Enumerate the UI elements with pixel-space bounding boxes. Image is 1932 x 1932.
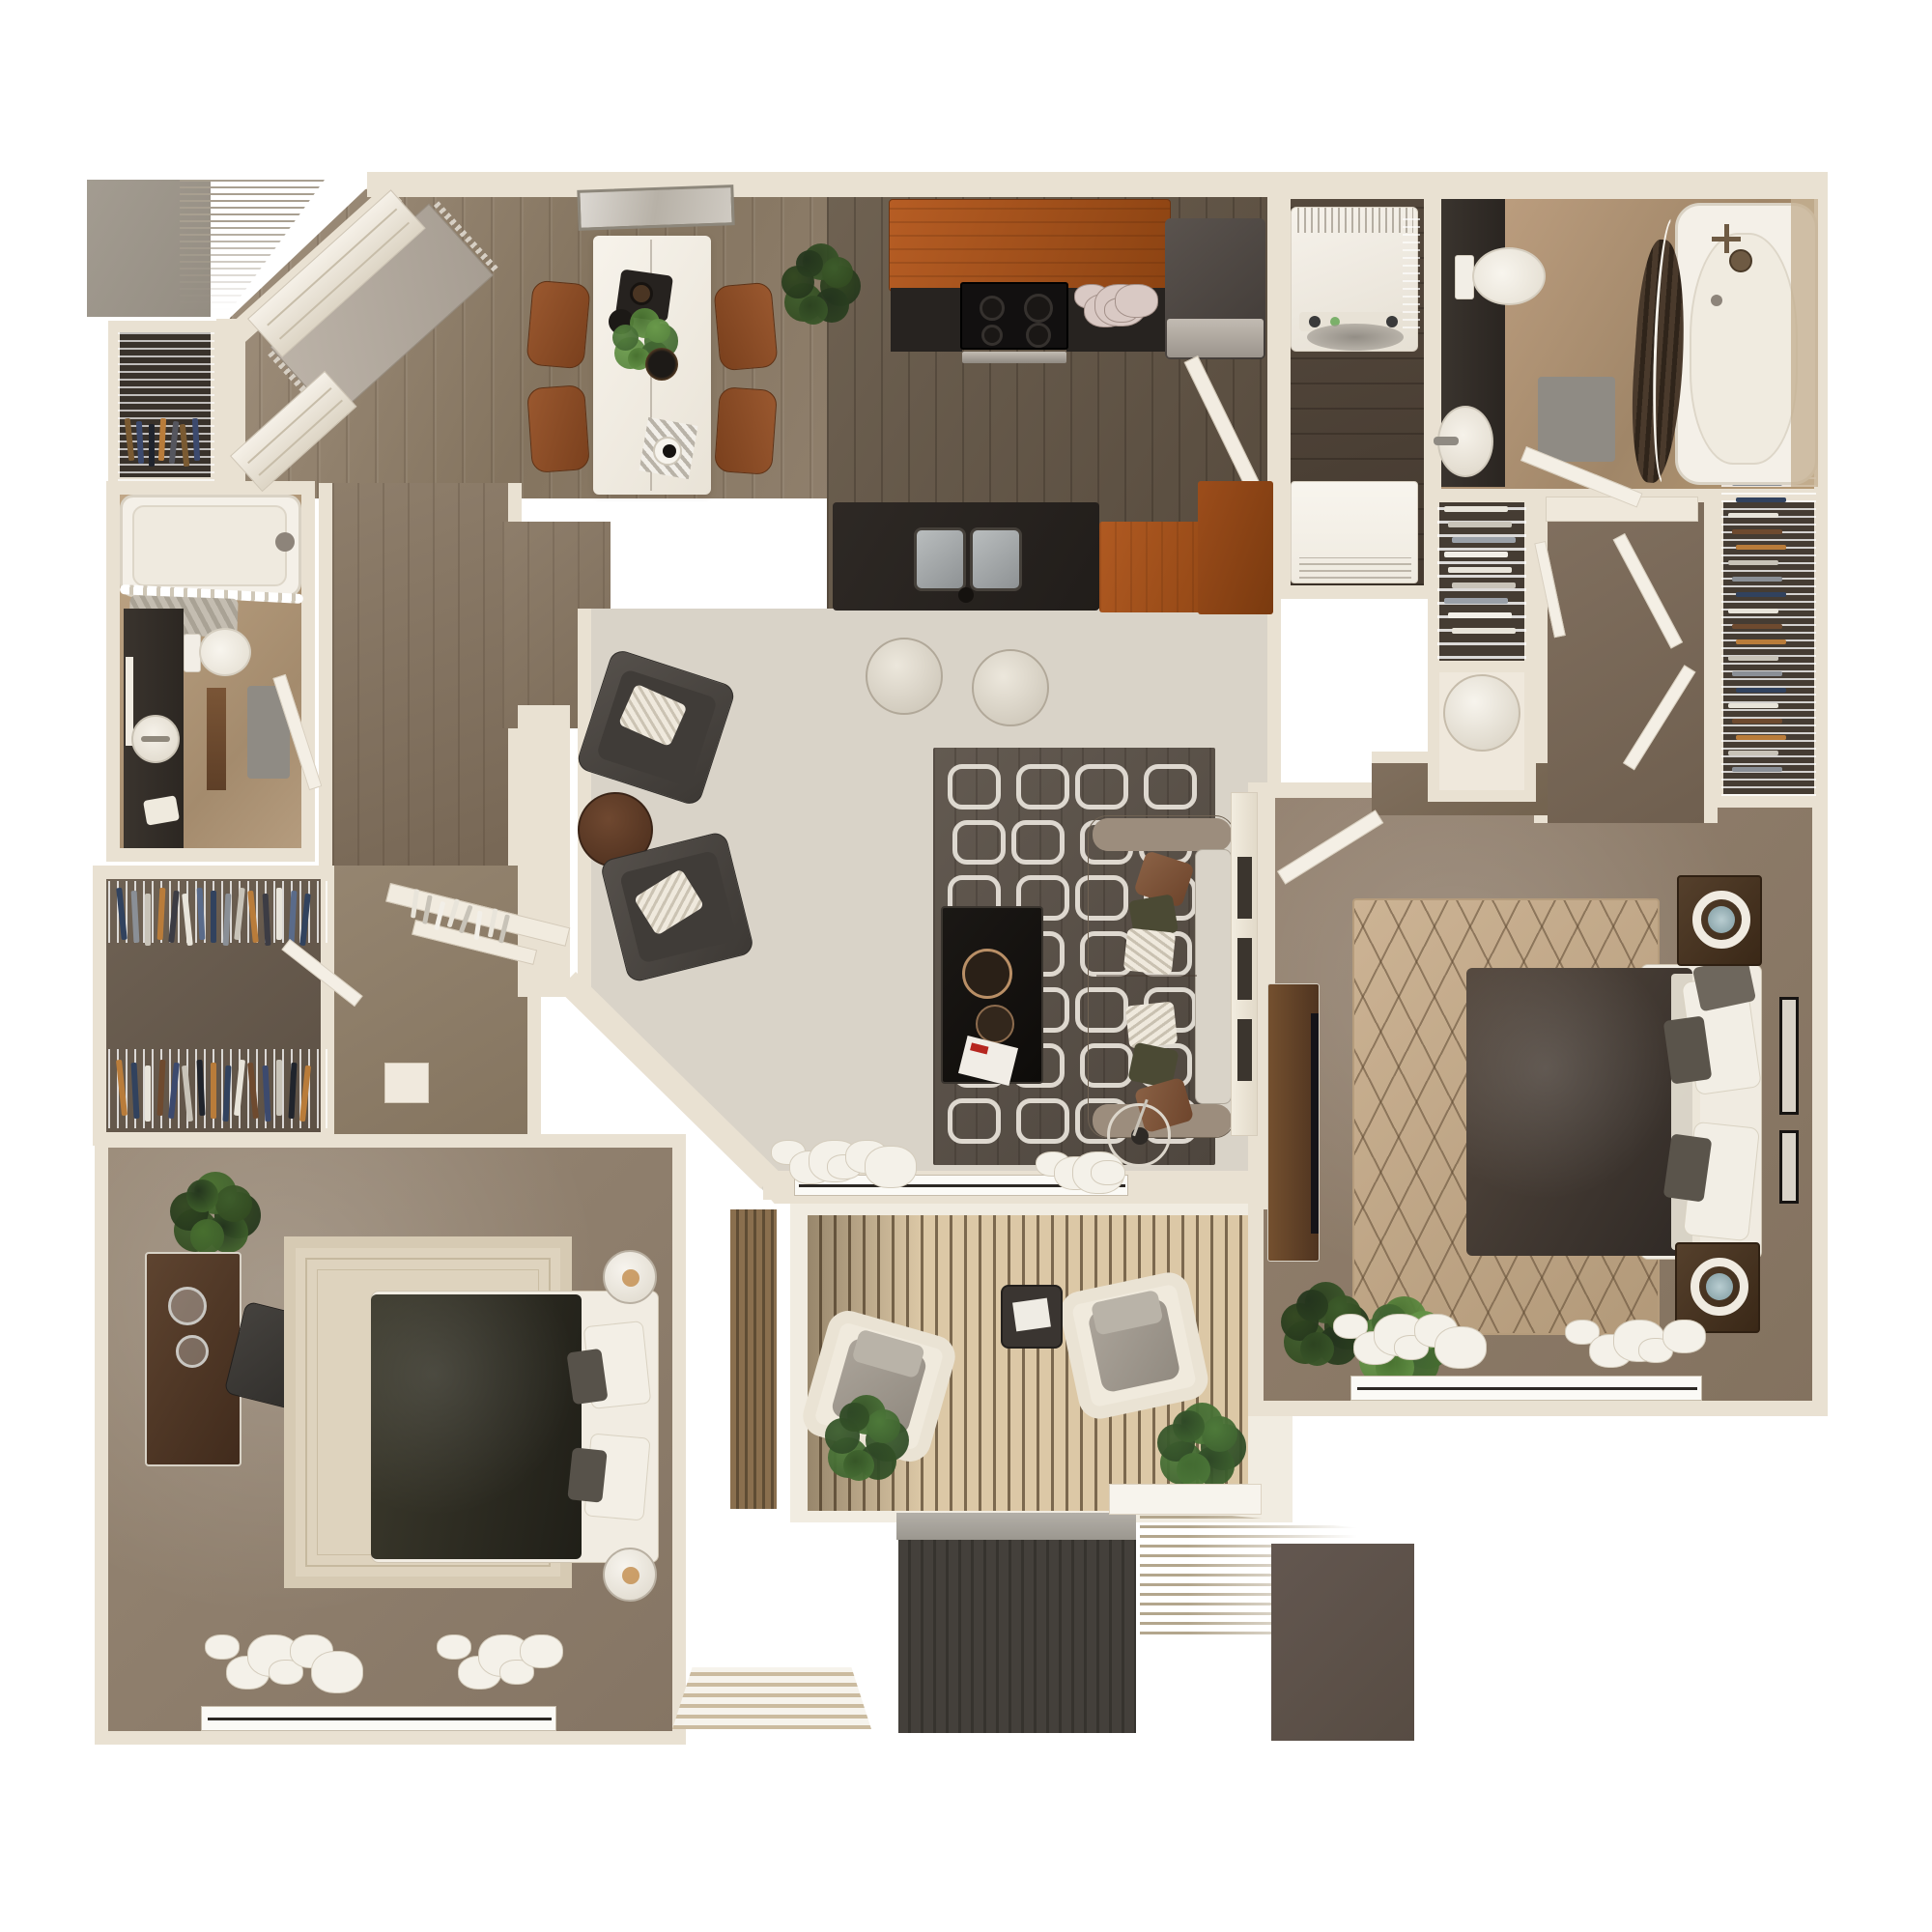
storage-room-brown bbox=[1271, 1544, 1414, 1741]
clothing-item bbox=[1444, 506, 1508, 512]
clothing-item bbox=[1452, 628, 1516, 634]
coat-closet-items bbox=[122, 415, 209, 473]
clothing-item bbox=[149, 424, 155, 467]
tray-round-2 bbox=[976, 1005, 1014, 1043]
clothing-item bbox=[247, 1063, 259, 1119]
toilet2-tank bbox=[1455, 255, 1474, 299]
clothing-item bbox=[156, 888, 165, 940]
master-tv-console bbox=[1267, 983, 1320, 1262]
clothing-item bbox=[262, 1065, 270, 1122]
dining-plant-corner bbox=[771, 230, 867, 342]
clothing-item bbox=[211, 891, 216, 943]
dining-chair-2 bbox=[526, 384, 590, 473]
bed2-window-rod bbox=[208, 1718, 552, 1720]
fabric-fold bbox=[1115, 284, 1158, 318]
fabric-fold bbox=[1091, 1160, 1125, 1185]
clothing-item bbox=[487, 908, 497, 937]
clothing-item bbox=[247, 891, 259, 943]
clothing-item bbox=[234, 1060, 245, 1116]
clothing-item bbox=[262, 894, 270, 946]
clothing-item bbox=[191, 418, 199, 461]
clothing-item bbox=[1736, 497, 1786, 502]
clothing-item bbox=[1728, 609, 1778, 613]
clothing-item bbox=[1736, 688, 1786, 693]
bath2-tile-ledge bbox=[1791, 199, 1818, 487]
chain-link bbox=[952, 820, 1006, 866]
clothing-item bbox=[1448, 522, 1512, 527]
toilet2-bowl bbox=[1472, 247, 1546, 305]
tub1-shower-head bbox=[275, 532, 295, 552]
clothing-item bbox=[168, 421, 179, 464]
clothing-item bbox=[1728, 703, 1778, 708]
plant-foliage bbox=[1300, 1332, 1334, 1366]
corridor-floor bbox=[319, 483, 522, 883]
balcony-edge-strip bbox=[896, 1513, 1136, 1540]
master-bed bbox=[1466, 964, 1762, 1260]
clothing-item bbox=[1732, 767, 1782, 772]
bed2-pillow-dark-2 bbox=[567, 1447, 607, 1502]
wall-frame-2 bbox=[1779, 1130, 1799, 1204]
clothing-item bbox=[276, 888, 282, 940]
clothing-item bbox=[473, 911, 482, 940]
clothing-item bbox=[288, 891, 297, 943]
clothing-item bbox=[1732, 624, 1782, 629]
chain-link bbox=[948, 1098, 1001, 1144]
toilet1-bowl bbox=[199, 628, 251, 676]
tub1-inner bbox=[132, 505, 287, 586]
dryer bbox=[1291, 481, 1418, 583]
clothing-item bbox=[1448, 567, 1512, 573]
desk-pitcher bbox=[168, 1287, 207, 1325]
plant-pot bbox=[645, 348, 678, 381]
balcony-table bbox=[1001, 1285, 1063, 1349]
plant-foliage bbox=[799, 296, 828, 325]
clothing-item bbox=[196, 1060, 205, 1116]
balcony-plant-left bbox=[813, 1381, 916, 1499]
chain-link bbox=[1016, 764, 1069, 810]
clothing-item bbox=[1728, 560, 1778, 565]
stove-burner bbox=[1024, 294, 1053, 323]
clothing-item bbox=[116, 888, 128, 940]
clothing-item bbox=[158, 418, 166, 461]
clothing-item bbox=[276, 1060, 282, 1116]
stove-burner bbox=[1026, 323, 1051, 348]
soap-tray bbox=[143, 795, 180, 826]
master-pillow-dark-1 bbox=[1663, 1015, 1713, 1084]
fridge-front bbox=[1167, 319, 1264, 357]
clothing-item bbox=[299, 1065, 311, 1122]
clothing-item bbox=[168, 1063, 180, 1119]
plant-foliage bbox=[186, 1179, 219, 1212]
side1-gold bbox=[622, 1269, 639, 1287]
pillow-striped-n bbox=[1123, 928, 1176, 976]
console-slot-2 bbox=[1237, 938, 1252, 1000]
dining-chair-3 bbox=[713, 282, 778, 372]
fabric-fold bbox=[865, 1146, 917, 1188]
fabric-fold bbox=[205, 1634, 240, 1660]
floor-plan-canvas bbox=[0, 0, 1932, 1932]
coffee-magazine bbox=[958, 1036, 1018, 1086]
clothing-item bbox=[1732, 671, 1782, 676]
bath1-tub bbox=[120, 495, 301, 597]
chain-link bbox=[1075, 764, 1128, 810]
clothing-item bbox=[459, 905, 473, 934]
console-slot-3 bbox=[1237, 1019, 1252, 1081]
clothing-item bbox=[169, 891, 181, 943]
chain-link bbox=[1011, 820, 1065, 866]
stove bbox=[960, 282, 1068, 350]
clothing-item bbox=[145, 894, 151, 946]
kitchen-counter-left bbox=[891, 288, 962, 352]
bed2-side-table-1 bbox=[603, 1250, 657, 1304]
island-counter bbox=[833, 502, 1099, 611]
side2-gold bbox=[622, 1567, 639, 1584]
living-curtain-pile bbox=[771, 1140, 906, 1194]
clothing-item bbox=[1452, 582, 1516, 588]
plant-foliage bbox=[822, 257, 853, 288]
clothing-item bbox=[1452, 537, 1516, 543]
bed2-desk bbox=[145, 1252, 241, 1466]
clothing-item bbox=[1444, 598, 1508, 604]
walkin1-clothes-top bbox=[114, 885, 321, 943]
dining-chair-4 bbox=[714, 386, 778, 475]
patio-stairs-dark bbox=[898, 1540, 1136, 1733]
coffee-table bbox=[941, 906, 1043, 1084]
clothing-item bbox=[1736, 592, 1786, 597]
clothing-item bbox=[1728, 513, 1778, 518]
fabric-fold bbox=[520, 1634, 563, 1668]
door-mat bbox=[672, 1667, 871, 1729]
dining-chair-1 bbox=[526, 280, 590, 370]
washer-drum bbox=[1307, 324, 1404, 351]
laundry-shelf-edge bbox=[1403, 214, 1420, 328]
plant-foliage bbox=[215, 1185, 252, 1222]
sink-faucet bbox=[958, 587, 974, 603]
bath1-sink-slit bbox=[141, 736, 170, 742]
clothing-item bbox=[1736, 639, 1786, 644]
island-wood-step bbox=[1198, 481, 1273, 614]
clothing-item bbox=[288, 1063, 297, 1119]
washer-vents bbox=[1297, 208, 1413, 233]
walkin1-clothes-bottom bbox=[114, 1057, 321, 1121]
clothing-item bbox=[130, 891, 139, 943]
fabric-fold bbox=[311, 1651, 363, 1693]
wall-frame-1 bbox=[1779, 997, 1799, 1115]
sofa-seat-seam bbox=[1096, 975, 1197, 977]
clothing-item bbox=[434, 901, 445, 930]
clothing-item bbox=[222, 1065, 231, 1122]
tv-screen bbox=[1311, 1013, 1319, 1234]
water-heater-tank bbox=[1443, 674, 1520, 752]
master-hall bbox=[1534, 483, 1718, 823]
chain-link bbox=[1016, 1098, 1069, 1144]
lamp-glass-s bbox=[1706, 1273, 1733, 1300]
clothing-item bbox=[300, 894, 312, 946]
clothing-item bbox=[180, 424, 190, 467]
washer-knob-3 bbox=[1386, 316, 1398, 327]
clothing-item bbox=[130, 1063, 139, 1119]
clothing-item bbox=[1732, 719, 1782, 724]
sofa-backrest bbox=[1195, 849, 1232, 1104]
nook-shelf-box bbox=[384, 1063, 429, 1103]
master-window-rod bbox=[1357, 1387, 1697, 1390]
bath2-shower-head bbox=[1729, 249, 1752, 272]
bath2-mat bbox=[1538, 377, 1615, 462]
clothing-item bbox=[411, 889, 419, 918]
bath2-toilet bbox=[1455, 245, 1549, 309]
bar-stool-2 bbox=[972, 649, 1049, 726]
clothing-item bbox=[1444, 552, 1508, 557]
master-blanket bbox=[1466, 968, 1692, 1256]
chain-link bbox=[1144, 764, 1197, 810]
bed2-blanket bbox=[371, 1294, 582, 1559]
clothing-item bbox=[498, 914, 510, 943]
dining-west-wall bbox=[216, 319, 245, 498]
pillow-striped-s bbox=[1125, 1002, 1178, 1049]
clothing-item bbox=[1736, 545, 1786, 550]
clothing-item bbox=[422, 895, 433, 923]
bath1-wood-drawers bbox=[207, 688, 226, 790]
clothing-item bbox=[447, 898, 461, 927]
bed2-bed bbox=[371, 1291, 659, 1563]
bed2-side-table-2 bbox=[603, 1548, 657, 1602]
plant-foliage bbox=[1173, 1410, 1205, 1442]
clothing-item bbox=[145, 1065, 151, 1122]
clothing-item bbox=[125, 418, 135, 461]
bath1-vanity bbox=[124, 609, 184, 848]
sink2-faucet bbox=[1434, 437, 1459, 445]
desk-glass bbox=[176, 1335, 209, 1368]
living-curtain-pile-2 bbox=[1036, 1151, 1132, 1194]
bed2-curtain-right bbox=[437, 1634, 564, 1710]
dryer-lines bbox=[1299, 557, 1411, 579]
master-curtain-right bbox=[1565, 1320, 1710, 1381]
clothing-item bbox=[182, 1065, 193, 1122]
clothing-item bbox=[1732, 529, 1782, 534]
cross-v bbox=[1724, 224, 1729, 253]
clothing-item bbox=[211, 1063, 216, 1119]
sofa-armrest-north bbox=[1093, 818, 1232, 851]
magazine-red-text bbox=[970, 1042, 988, 1054]
bed2-curtain-left bbox=[205, 1634, 355, 1710]
bar-stool-1 bbox=[866, 638, 943, 715]
counter-flowers bbox=[1074, 284, 1148, 336]
washer-knob-1 bbox=[1309, 316, 1321, 327]
clothing-item bbox=[116, 1060, 128, 1116]
nightstand-north bbox=[1677, 875, 1762, 966]
plant-foliage bbox=[1296, 1290, 1328, 1321]
oven-front bbox=[962, 352, 1066, 363]
clothing-item bbox=[235, 888, 246, 940]
stove-burner bbox=[981, 325, 1003, 346]
fridge bbox=[1165, 218, 1265, 359]
kitchen-upper-cabinets bbox=[889, 199, 1171, 292]
bath1-toilet bbox=[184, 626, 253, 680]
plant-foliage bbox=[839, 1403, 869, 1433]
napkin-cup bbox=[663, 444, 676, 458]
clothing-item bbox=[1448, 612, 1512, 618]
sink-basin-1 bbox=[914, 527, 966, 591]
master-curtain-left bbox=[1333, 1314, 1478, 1381]
stove-burner bbox=[980, 296, 1005, 321]
tub2-drain bbox=[1711, 295, 1722, 306]
dining-table bbox=[593, 236, 711, 495]
clothing-item bbox=[1728, 656, 1778, 661]
bath2-shower-cross bbox=[1712, 224, 1741, 253]
sofa bbox=[1088, 815, 1235, 1138]
walkin2-clothes bbox=[1725, 462, 1810, 786]
clothing-item bbox=[1732, 577, 1782, 582]
clothing-item bbox=[1736, 735, 1786, 740]
fabric-fold bbox=[437, 1634, 471, 1660]
plant-foliage bbox=[190, 1219, 225, 1254]
dining-wall-art bbox=[577, 185, 734, 231]
tray-round-1 bbox=[962, 949, 1012, 999]
media-console bbox=[1231, 792, 1258, 1136]
linen-towels bbox=[1441, 502, 1519, 647]
washer bbox=[1291, 207, 1418, 352]
console-slot-1 bbox=[1237, 857, 1252, 919]
plant-foliage bbox=[867, 1409, 900, 1443]
balcony-side-slats bbox=[730, 1209, 777, 1509]
clothing-item bbox=[196, 888, 205, 940]
bath2-sink bbox=[1437, 406, 1493, 477]
lamp-glass-n bbox=[1708, 906, 1735, 933]
chain-link bbox=[948, 764, 1001, 810]
bed2-pillow-dark-1 bbox=[566, 1349, 608, 1405]
clothing-item bbox=[156, 1060, 165, 1116]
patio-sill-white bbox=[1109, 1484, 1262, 1515]
bed2-plant bbox=[158, 1165, 269, 1265]
clothing-item bbox=[182, 894, 193, 946]
sink-basin-2 bbox=[970, 527, 1022, 591]
plant-foliage bbox=[843, 1450, 875, 1482]
clothing-item bbox=[222, 894, 231, 946]
fabric-fold bbox=[1662, 1320, 1706, 1353]
clothing-item bbox=[1728, 751, 1778, 755]
balcony-magazine bbox=[1012, 1298, 1051, 1332]
clothing-item bbox=[136, 421, 144, 464]
fabric-fold bbox=[1435, 1326, 1487, 1369]
